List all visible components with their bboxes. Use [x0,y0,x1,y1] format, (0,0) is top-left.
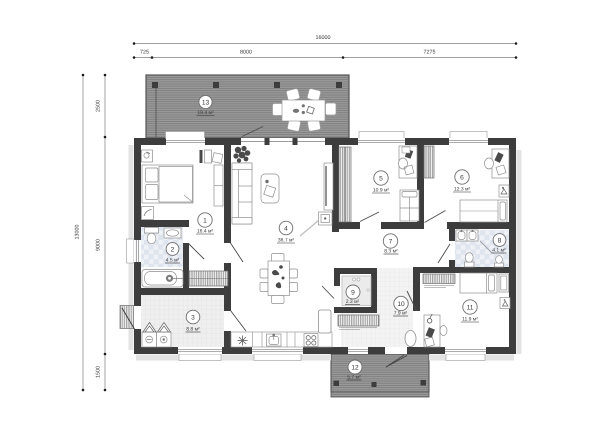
svg-text:5.7 м²: 5.7 м² [347,375,361,381]
svg-text:10.9 м²: 10.9 м² [373,188,390,194]
svg-text:8.3 м²: 8.3 м² [384,249,398,255]
svg-text:7.9 м²: 7.9 м² [394,311,408,317]
svg-text:4.5 м²: 4.5 м² [166,258,180,264]
svg-text:725: 725 [140,50,149,56]
svg-text:11: 11 [467,304,474,311]
svg-text:2500: 2500 [96,100,102,112]
svg-text:12: 12 [351,364,359,371]
svg-text:2.3 м²: 2.3 м² [346,299,360,305]
svg-text:2: 2 [171,246,175,253]
svg-text:6: 6 [460,174,464,181]
svg-text:8.8 м²: 8.8 м² [186,327,200,333]
svg-text:9000: 9000 [96,239,102,251]
svg-text:8: 8 [498,237,502,244]
svg-text:1: 1 [203,217,207,224]
svg-text:13000: 13000 [75,225,81,240]
svg-text:10: 10 [397,301,405,308]
svg-text:16.4 м²: 16.4 м² [197,229,214,235]
svg-text:4.1 м²: 4.1 м² [492,248,506,254]
svg-text:11.9 м²: 11.9 м² [462,317,478,323]
svg-text:8000: 8000 [240,50,252,56]
svg-text:36.7 м²: 36.7 м² [278,238,295,244]
svg-text:7: 7 [389,238,393,245]
svg-text:4: 4 [284,225,288,232]
svg-text:3: 3 [191,314,195,321]
svg-text:5: 5 [379,175,383,182]
svg-text:16000: 16000 [316,35,331,41]
svg-text:7275: 7275 [424,50,436,56]
svg-text:9: 9 [351,289,355,296]
svg-text:1500: 1500 [96,366,102,378]
svg-text:12.3 м²: 12.3 м² [454,187,471,193]
svg-text:19.4 м²: 19.4 м² [197,110,214,116]
svg-text:13: 13 [202,99,210,106]
